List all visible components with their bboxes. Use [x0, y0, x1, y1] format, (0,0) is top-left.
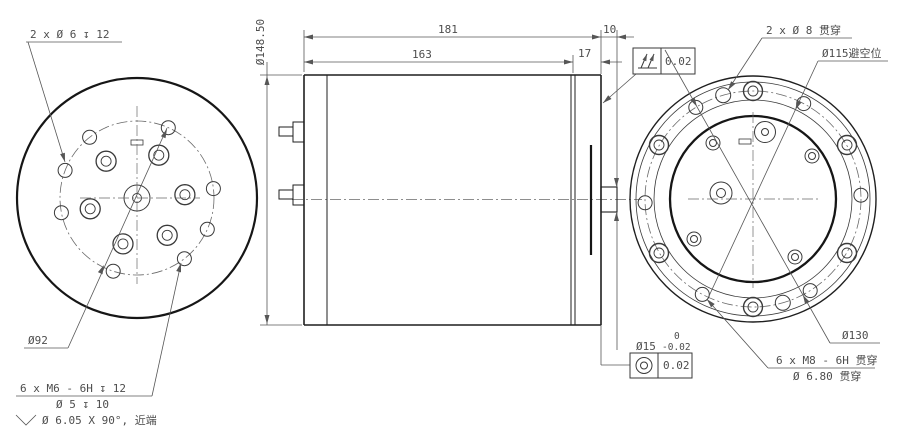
concentricity-value: 0.02 [663, 359, 690, 372]
total-runout-icon [638, 54, 657, 68]
left-leaders [16, 42, 181, 425]
right-callout-tapped-2: Ø 6.80 贯穿 [793, 369, 861, 383]
front-body-outline [304, 75, 601, 325]
left-callout-tapped-2: Ø 5 ↧ 10 [56, 398, 109, 411]
right-callout-clearance: Ø115避空位 [822, 46, 882, 60]
right-callout-through-holes: 2 x Ø 8 贯穿 [766, 23, 841, 37]
cad-drawing-canvas: 2 x Ø 6 ↧ 12 Ø92 6 x M6 - 6H ↧ 12 Ø 5 ↧ … [0, 0, 902, 441]
right-leaders [665, 38, 888, 368]
front-view: 0.02 0.02 181 163 17 10 Ø148.50 Ø15 0 -0… [254, 19, 695, 378]
dim-overall-length: 181 [438, 23, 458, 36]
left-side-view: 2 x Ø 6 ↧ 12 Ø92 6 x M6 - 6H ↧ 12 Ø 5 ↧ … [16, 28, 257, 427]
front-dim-lines [260, 30, 636, 365]
shaft-tol-upper: 0 [674, 331, 680, 342]
front-connector-2 [279, 185, 304, 205]
countersink-icon [16, 415, 36, 425]
left-leader-arrows [60, 129, 181, 274]
right-callout-tapped-1: 6 x M8 - 6H 贯穿 [776, 353, 877, 367]
left-dowel-holes [58, 163, 214, 236]
total-runout-frame: 0.02 [633, 48, 695, 74]
technical-drawing: 2 x Ø 6 ↧ 12 Ø92 6 x M6 - 6H ↧ 12 Ø 5 ↧ … [0, 0, 902, 441]
concentricity-frame: 0.02 [630, 353, 692, 378]
left-callout-tapped-1: 6 x M6 - 6H ↧ 12 [20, 382, 126, 395]
left-counterbore-holes [80, 145, 195, 254]
left-callout-top-holes: 2 x Ø 6 ↧ 12 [30, 28, 109, 41]
dim-shaft-length: 10 [603, 23, 616, 36]
shaft-tol-lower: -0.02 [662, 342, 691, 353]
right-callout-bolt-circle: Ø130 [842, 329, 869, 342]
shaft-diameter: Ø15 [636, 340, 656, 353]
dim-body-length: 163 [412, 48, 432, 61]
concentricity-icon [636, 358, 652, 374]
left-m6-holes [54, 121, 220, 279]
front-dim-arrows [265, 35, 627, 325]
left-callout-bolt-circle: Ø92 [28, 334, 48, 347]
dim-cap-length: 17 [578, 47, 591, 60]
left-callout-tapped-3: Ø 6.05 X 90°, 近端 [42, 414, 157, 427]
right-side-view: 2 x Ø 8 贯穿 Ø115避空位 Ø130 6 x M8 - 6H 贯穿 Ø… [630, 23, 888, 383]
front-connector-1 [279, 122, 304, 142]
dim-outer-diameter: Ø148.50 [254, 19, 267, 65]
right-keyway [739, 139, 751, 144]
